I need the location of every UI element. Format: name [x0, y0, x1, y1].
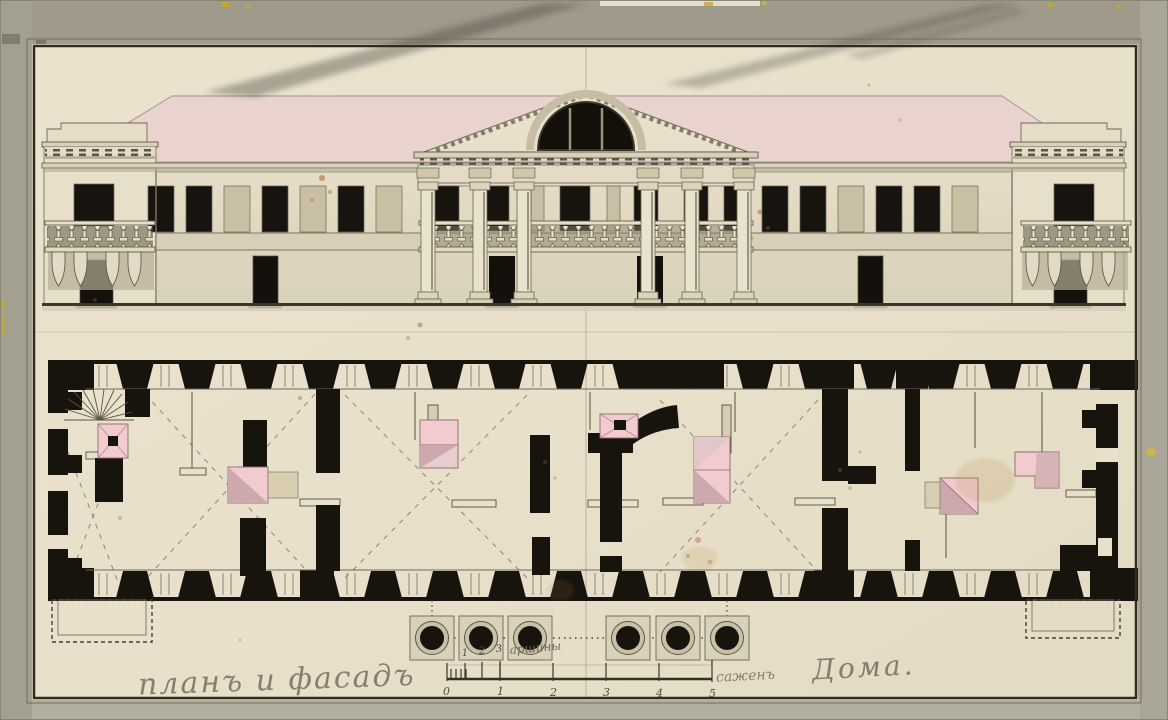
column-base-plan	[656, 616, 700, 660]
blind-window	[952, 186, 978, 232]
stove-square-mid-left	[420, 420, 458, 468]
ground-line	[42, 303, 1126, 306]
balcony-door-left-pavilion	[74, 184, 114, 226]
arshin-tick-label: 1	[461, 648, 468, 659]
arshin-tick-label: 2	[477, 646, 485, 657]
drawing-canvas: 1 2 3 аршины 0 1 2 3 4 5 планъ и фасадъ …	[0, 0, 1168, 720]
arshin-tick-label: 3	[495, 644, 502, 655]
attic-parapet-left	[47, 123, 147, 144]
balcony-right	[1021, 221, 1131, 290]
window-opening	[186, 186, 212, 232]
plan-top-wall	[48, 360, 1138, 390]
portico-entablature	[414, 152, 758, 186]
entrance-door	[253, 256, 278, 305]
interior-wall	[600, 556, 622, 572]
window-opening	[876, 186, 902, 232]
interior-wall	[240, 518, 266, 576]
window-opening	[762, 186, 788, 232]
stove-square-center	[694, 437, 730, 503]
architectural-drawing-sheet: 1 2 3 аршины 0 1 2 3 4 5 планъ и фасадъ …	[0, 0, 1168, 720]
stove-square-left	[228, 467, 298, 503]
interior-wall	[95, 458, 123, 502]
plan-bottom-wall	[48, 568, 1138, 601]
attic-parapet-right	[1021, 123, 1121, 144]
interior-wall	[316, 389, 340, 473]
balcony-door-right-pavilion	[1054, 184, 1094, 226]
interior-wall	[532, 537, 550, 575]
window-opening	[262, 186, 288, 232]
window-opening	[800, 186, 826, 232]
inscription-sazhen: саженъ	[716, 667, 776, 686]
facade-elevation	[42, 92, 1131, 311]
sazhen-tick-label: 1	[497, 685, 504, 698]
entrance-door	[858, 256, 883, 305]
window-opening	[914, 186, 940, 232]
blind-window	[376, 186, 402, 232]
pavilion-cornice-left	[42, 142, 158, 159]
inscription-doma: Дома.	[809, 648, 916, 686]
pavilion-cornice-right	[1010, 142, 1126, 159]
sazhen-tick-label: 0	[443, 685, 450, 698]
interior-wall	[822, 508, 848, 571]
blind-window	[838, 186, 864, 232]
blind-window	[224, 186, 250, 232]
interior-wall	[848, 466, 876, 484]
interior-wall	[600, 446, 622, 542]
interior-wall	[822, 389, 848, 481]
lower-storey-band	[156, 252, 1012, 305]
interior-wall	[243, 420, 267, 467]
column-base-plan	[705, 616, 749, 660]
stove-envelope-center	[600, 414, 638, 438]
balcony-left	[45, 221, 155, 290]
blind-window	[300, 186, 326, 232]
stove-envelope-left	[98, 424, 128, 458]
interior-wall	[905, 389, 920, 471]
column-base-plan	[410, 616, 454, 660]
interior-wall	[530, 435, 550, 513]
column-base-plan	[606, 616, 650, 660]
window-opening	[338, 186, 364, 232]
interior-wall	[316, 505, 340, 571]
interior-wall	[905, 540, 920, 571]
